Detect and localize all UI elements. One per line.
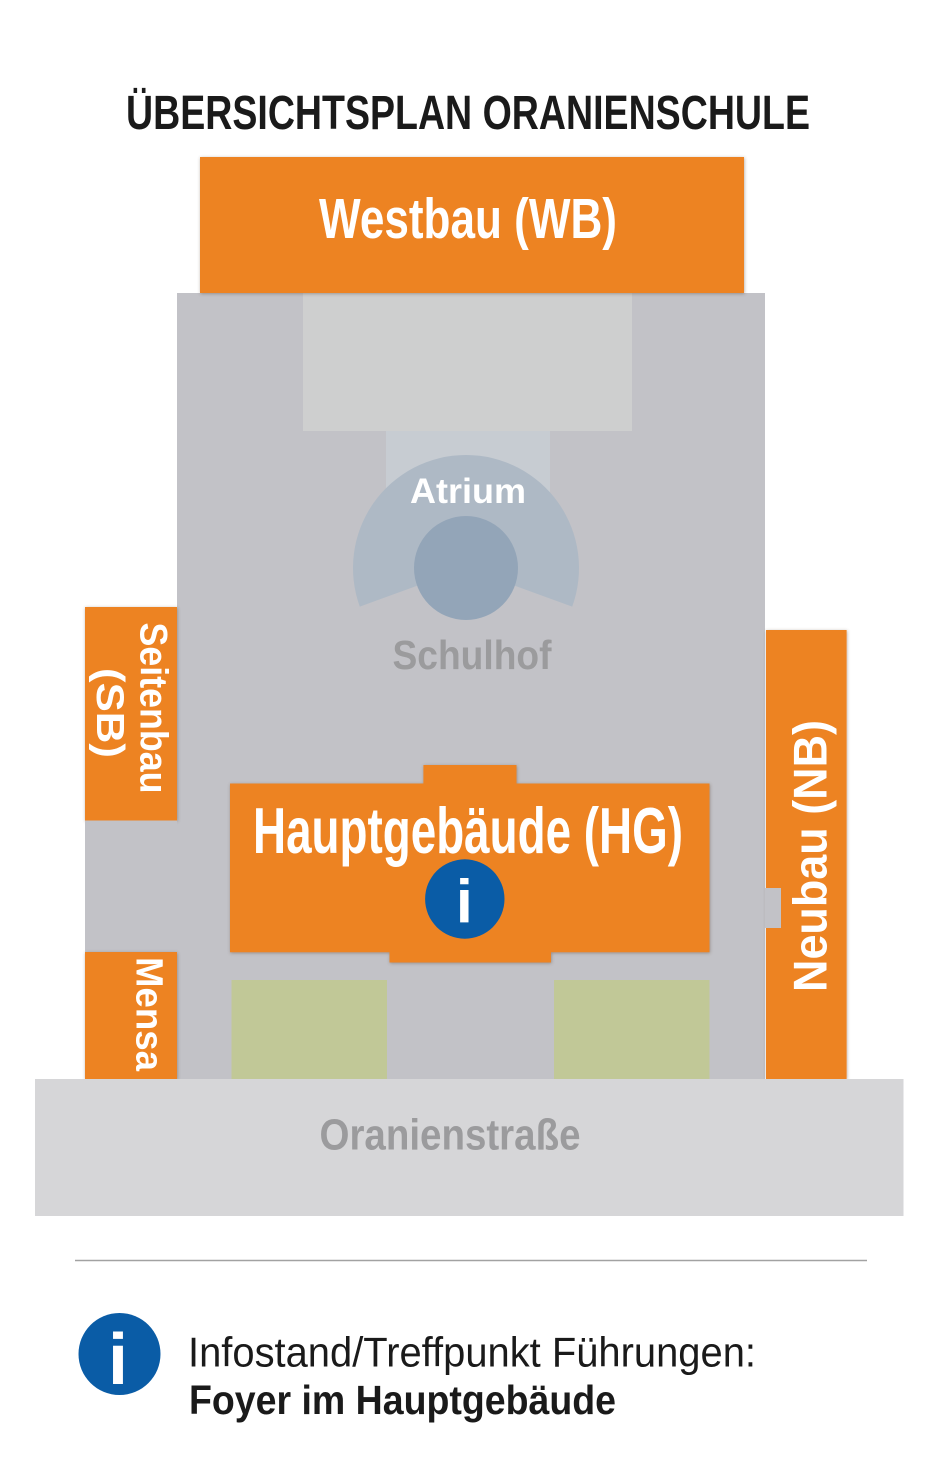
svg-text:Atrium: Atrium (410, 472, 526, 511)
svg-text:(SB): (SB) (88, 668, 131, 758)
svg-text:Neubau (NB): Neubau (NB) (784, 720, 837, 992)
svg-text:Hauptgebäude (HG): Hauptgebäude (HG) (253, 794, 683, 867)
svg-text:Foyer im Hauptgebäude: Foyer im Hauptgebäude (189, 1377, 616, 1423)
svg-text:i: i (108, 1320, 128, 1400)
svg-text:Mensa: Mensa (128, 957, 170, 1072)
svg-text:i: i (456, 868, 473, 936)
svg-text:Seitenbau: Seitenbau (132, 623, 175, 794)
svg-text:Schulhof: Schulhof (393, 632, 552, 678)
svg-text:Westbau (WB): Westbau (WB) (319, 187, 617, 251)
svg-text:Oranienstraße: Oranienstraße (320, 1111, 581, 1160)
svg-text:Infostand/Treffpunkt Führungen: Infostand/Treffpunkt Führungen: (188, 1329, 756, 1376)
svg-text:ÜBERSICHTSPLAN ORANIENSCHULE: ÜBERSICHTSPLAN ORANIENSCHULE (126, 87, 810, 140)
